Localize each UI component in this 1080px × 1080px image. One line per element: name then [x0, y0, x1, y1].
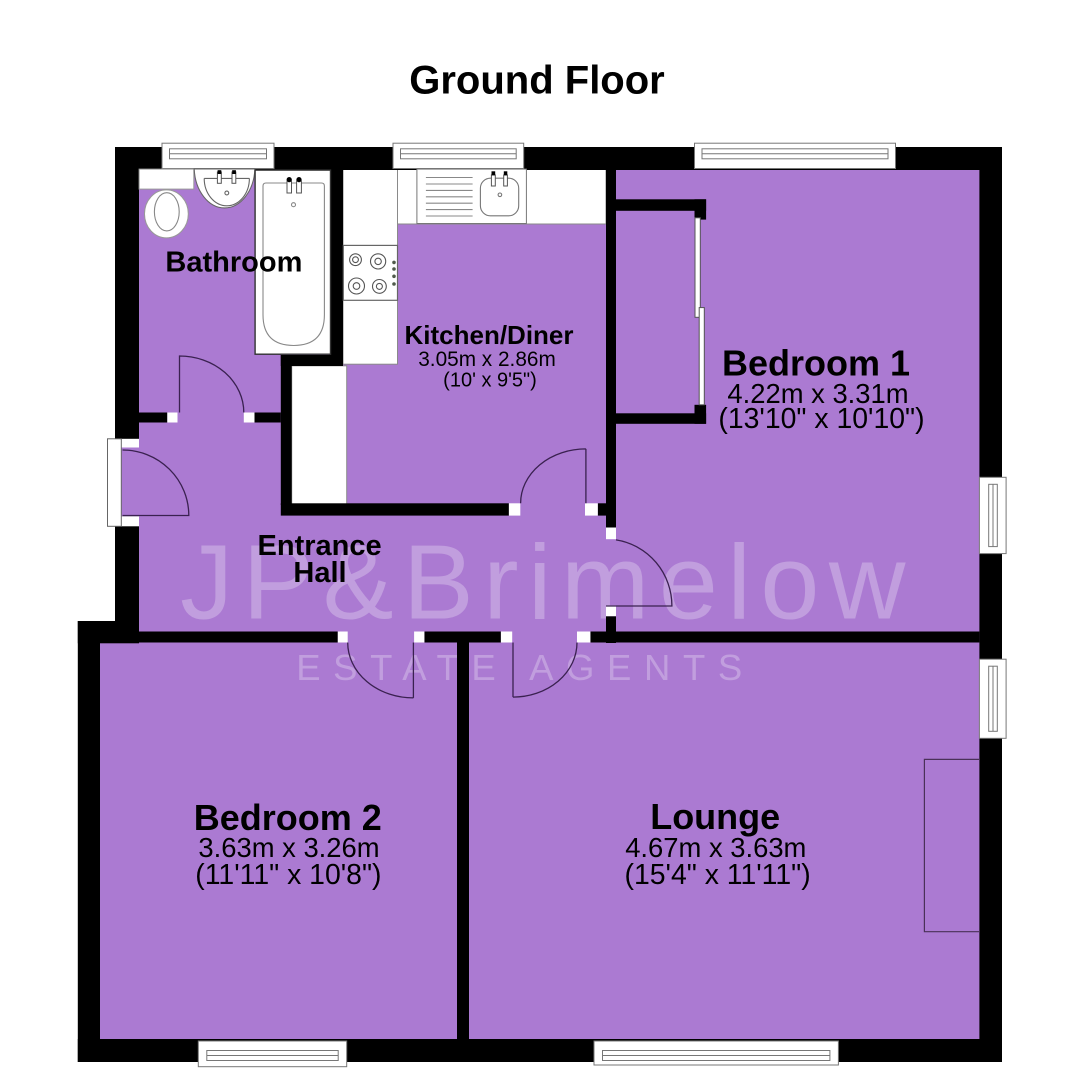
svg-text:ESTATE AGENTS: ESTATE AGENTS: [296, 647, 755, 688]
svg-text:Ground Floor: Ground Floor: [409, 59, 665, 103]
svg-text:(13'10" x 10'10"): (13'10" x 10'10"): [718, 403, 924, 435]
svg-text:(15'4" x 11'11"): (15'4" x 11'11"): [625, 859, 811, 891]
svg-text:Hall: Hall: [293, 557, 346, 589]
svg-text:Bathroom: Bathroom: [165, 247, 302, 279]
svg-text:(11'11" x 10'8"): (11'11" x 10'8"): [195, 859, 381, 891]
svg-text:Kitchen/Diner: Kitchen/Diner: [404, 320, 573, 350]
svg-text:Lounge: Lounge: [650, 796, 780, 837]
svg-text:(10' x 9'5"): (10' x 9'5"): [443, 369, 537, 391]
svg-text:3.05m x 2.86m: 3.05m x 2.86m: [418, 348, 556, 371]
